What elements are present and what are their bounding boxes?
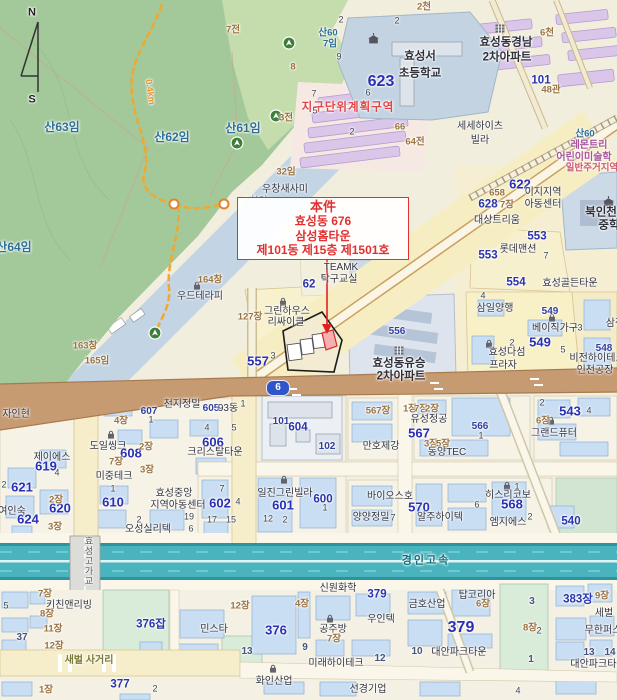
map-background bbox=[0, 0, 617, 700]
map-canvas[interactable]: NS산63임산62임산61임산64임산607임7전83전32임2천22효성서초등… bbox=[0, 0, 617, 700]
annotation-unit: 제101동 제15층 제1501호 bbox=[257, 243, 390, 258]
apartment-icon bbox=[395, 347, 404, 355]
subject-annotation: 本件 효성동 676 삼성홈타운 제101동 제15층 제1501호 bbox=[237, 197, 409, 260]
annotation-address: 효성동 676 bbox=[295, 214, 351, 229]
apartment-icon bbox=[496, 25, 505, 33]
trail-marker-icon bbox=[283, 37, 295, 49]
route-6-shield: 6 bbox=[266, 380, 290, 396]
annotation-building: 삼성홈타운 bbox=[295, 229, 350, 244]
annotation-tag: 本件 bbox=[310, 200, 336, 215]
trail-marker-icon bbox=[231, 137, 243, 149]
trail-marker-icon bbox=[149, 327, 161, 339]
trail-waypoint-icon bbox=[170, 200, 179, 209]
trail-waypoint-icon bbox=[220, 200, 229, 209]
trail-marker-icon bbox=[270, 110, 282, 122]
